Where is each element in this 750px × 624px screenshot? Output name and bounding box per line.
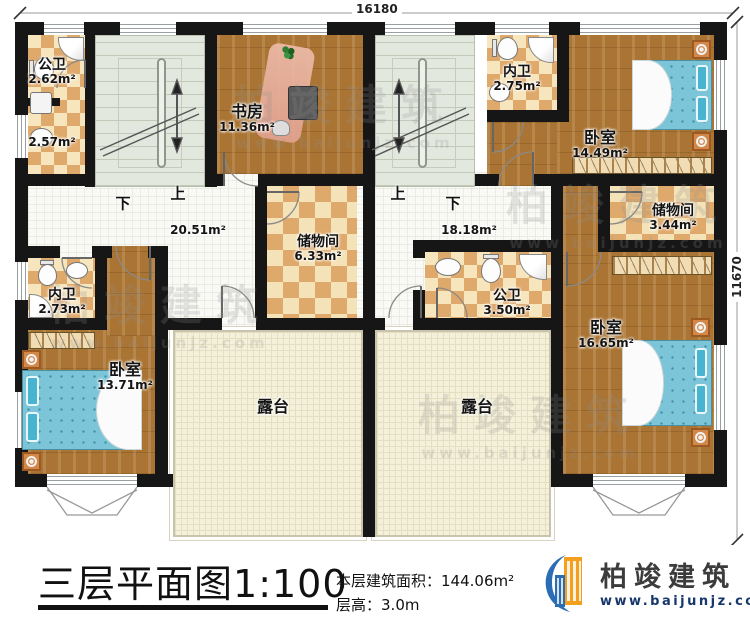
wall-terrace-left-top-b xyxy=(256,318,363,330)
logo-company-name: 柏竣建筑 xyxy=(600,555,750,594)
window-top-stair-left xyxy=(120,22,176,35)
company-logo: 柏竣建筑 www.baijunjz.com xyxy=(540,551,750,613)
window-right-bedroom-top xyxy=(714,60,727,130)
floorplan-page: { "rooms": { "gongwei_tl": {"name": "公卫"… xyxy=(0,0,750,624)
room-label-study: 书房11.36m² xyxy=(219,103,275,135)
study-plant xyxy=(280,44,296,60)
wall-hall-top-e xyxy=(533,174,714,186)
wall-terrace-left-top-a xyxy=(168,318,222,330)
stairwell-right-rail xyxy=(418,58,427,168)
terrace-left-floor xyxy=(173,330,363,537)
logo-texts: 柏竣建筑 www.baijunjz.com xyxy=(600,555,750,609)
pillow-tr-2 xyxy=(696,96,708,122)
room-label-storage-left: 储物间6.33m² xyxy=(294,234,341,264)
window-top-stair-right xyxy=(385,22,455,35)
wall-bath-tr-right xyxy=(557,35,569,122)
toilet-top-right xyxy=(497,37,518,60)
nightstand-br-bottom xyxy=(691,428,710,447)
pillow-bl-2 xyxy=(26,412,39,442)
wall-center-divider xyxy=(363,22,375,537)
nightstand-bl-top xyxy=(22,350,41,369)
nightstand-tr-top xyxy=(692,40,711,59)
stair-right-up-label: 上 xyxy=(390,183,405,204)
plan-title: 三层平面图1:100 xyxy=(38,553,348,608)
wall-bath-tl-right xyxy=(85,35,95,187)
stairwell-left-well xyxy=(118,58,182,168)
toilet-mid-left xyxy=(38,264,57,286)
wall-terrace-right-top-a xyxy=(375,318,385,330)
wall-hall-top-c xyxy=(258,174,363,186)
toilet-mid-right xyxy=(481,258,501,283)
bedroom-bottom-left-entry-floor xyxy=(107,246,155,336)
wall-terrace-right-top-b xyxy=(420,318,563,330)
terrace-right-floor xyxy=(375,330,551,537)
nightstand-tr-bottom xyxy=(692,132,711,151)
window-left-bath xyxy=(15,115,28,158)
title-block: 三层平面图1:100 本层建筑面积：144.06m² 层高：3.0m 柏竣建筑 … xyxy=(0,545,750,624)
room-label-woshi-bl: 卧室13.71m² xyxy=(97,361,153,393)
wall-storage-right-bottom xyxy=(598,240,714,252)
wall-hall-top-b xyxy=(205,174,224,186)
floor-area-row: 本层建筑面积：144.06m² xyxy=(336,569,514,593)
logo-website: www.baijunjz.com xyxy=(600,594,750,609)
floor-height-row: 层高：3.0m xyxy=(336,593,514,617)
window-bay-right xyxy=(593,474,685,487)
window-top-bath-left xyxy=(44,22,84,35)
room-label-woshi-br: 卧室16.65m² xyxy=(578,319,634,351)
title-underline xyxy=(38,605,328,610)
nightstand-bl-bottom xyxy=(22,452,41,471)
wall-bedroom-bl-right xyxy=(155,246,168,474)
room-label-neiwei-tr: 内卫2.75m² xyxy=(493,64,540,94)
room-label-neiwei-left: 内卫2.73m² xyxy=(38,287,85,317)
sink-mid-right xyxy=(435,258,461,276)
sink-mid-left xyxy=(66,262,88,279)
nightstand-br-top xyxy=(691,318,710,337)
wardrobe-bottom-left xyxy=(28,332,95,349)
dimension-top: 16180 xyxy=(352,2,402,16)
washer-top-left xyxy=(30,92,52,114)
stair-left-up-label: 上 xyxy=(170,183,185,204)
pillow-br-1 xyxy=(695,348,707,378)
study-desk xyxy=(288,86,318,120)
room-label-hall-left: 20.51m² xyxy=(170,224,226,238)
room-label-hall-right: 18.18m² xyxy=(441,224,497,238)
stair-right-down-label: 下 xyxy=(445,193,460,214)
window-top-bath-right xyxy=(495,22,549,35)
pillow-bl-1 xyxy=(26,376,39,406)
stairwell-left-rail xyxy=(157,58,166,168)
room-label-gongwei-right: 公卫3.50m² xyxy=(483,288,530,318)
room-label-terrace-right: 露台 xyxy=(461,398,493,416)
wall-hall-top-a xyxy=(15,174,95,186)
wall-bedroom-br-left xyxy=(551,186,563,474)
window-top-bedroom-right xyxy=(580,22,700,35)
window-top-study xyxy=(243,22,327,35)
room-label-bath-tl-lower: 2.57m² xyxy=(28,136,75,150)
pillow-br-2 xyxy=(695,384,707,414)
floor-plan: 柏竣建筑 www.baijunjz.com 柏竣建筑 www.baijunjz.… xyxy=(0,0,750,545)
wall-storage-left-left xyxy=(255,186,267,318)
stair-left-down-label: 下 xyxy=(115,193,130,214)
wall-bath-tr-bottom xyxy=(487,110,557,122)
room-label-woshi-tr: 卧室14.49m² xyxy=(572,129,628,161)
wall-stair-left-right xyxy=(205,35,217,187)
company-logo-icon xyxy=(540,551,592,613)
dimension-right: 11670 xyxy=(730,252,744,302)
window-left-neiwei xyxy=(15,262,28,300)
room-label-storage-right: 储物间3.44m² xyxy=(649,203,696,233)
wall-gongwei-right-left-a xyxy=(413,240,425,258)
room-label-terrace-left: 露台 xyxy=(257,398,289,416)
wall-neiwei-left-bottom xyxy=(15,318,107,330)
pillow-tr-1 xyxy=(696,65,708,91)
wall-neiwei-left-top-a xyxy=(15,246,60,258)
wardrobe-bottom-right xyxy=(612,256,712,275)
window-bay-left xyxy=(47,474,137,487)
wall-hall-top-d xyxy=(475,174,499,186)
bedroom-bottom-right-entry-floor xyxy=(563,186,598,256)
wall-gongwei-right-top xyxy=(413,240,551,252)
plan-stats: 本层建筑面积：144.06m² 层高：3.0m xyxy=(336,569,514,617)
room-label-gongwei-tl: 公卫2.62m² xyxy=(28,57,75,87)
window-right-bedroom-bottom xyxy=(714,345,727,430)
